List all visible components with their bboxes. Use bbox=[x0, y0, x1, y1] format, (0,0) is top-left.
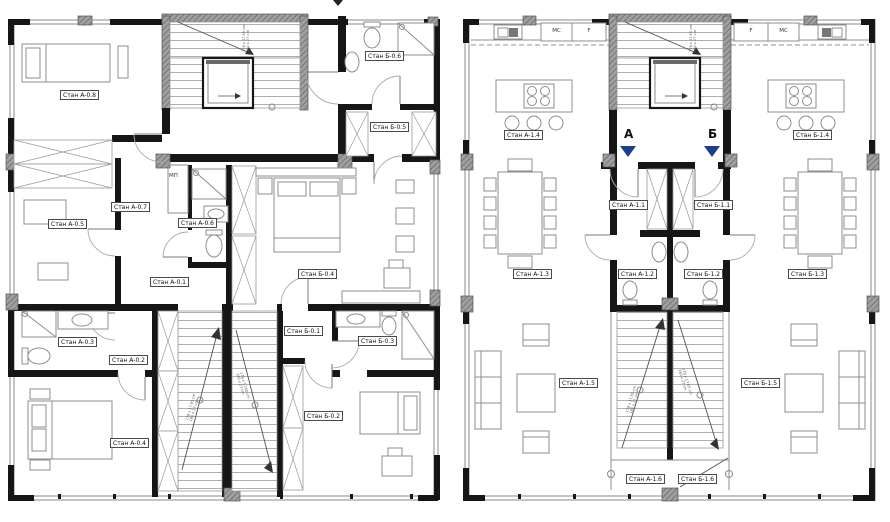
bath-b03 bbox=[336, 311, 434, 359]
coffee-table-right bbox=[785, 374, 823, 412]
room-label-b14: Стан Б-1.4 bbox=[793, 130, 832, 140]
tv-unit bbox=[118, 46, 128, 78]
elevator bbox=[650, 58, 700, 108]
floor-plan-left bbox=[6, 14, 440, 501]
armchair bbox=[791, 324, 817, 346]
cabinet-label-f-left: F bbox=[572, 28, 606, 34]
armchair bbox=[791, 431, 817, 453]
sink-a12 bbox=[652, 242, 666, 262]
bath-b06 bbox=[345, 22, 434, 72]
room-label-a04: Стан А-0.4 bbox=[110, 438, 149, 448]
room-label-b01: Стан Б-0.1 bbox=[284, 326, 323, 336]
room-label-a03: Стан А-0.3 bbox=[58, 337, 97, 347]
desk-a05 bbox=[38, 263, 68, 280]
section-cut-icon bbox=[333, 0, 343, 6]
room-label-a15: Стан А-1.5 bbox=[559, 378, 598, 388]
toilet-b12 bbox=[703, 281, 717, 299]
room-label-b13: Стан Б-1.3 bbox=[788, 269, 827, 279]
bath-a06 bbox=[192, 169, 228, 257]
dining-table-left bbox=[484, 159, 556, 268]
armchair bbox=[523, 324, 549, 346]
stair-dimension-text: 178 x 17.65 cm180 x 27 cm bbox=[243, 25, 250, 52]
closet-label-mp: МП bbox=[169, 173, 178, 179]
room-label-a13: Стан А-1.3 bbox=[513, 269, 552, 279]
cabinet-label-mc-right: МС bbox=[768, 28, 799, 34]
bed-b04 bbox=[256, 168, 420, 303]
room-label-a14: Стан А-1.4 bbox=[504, 130, 543, 140]
room-label-b05: Стан Б-0.5 bbox=[370, 122, 409, 132]
stair-dimension-text: 178 x 17.65 cm180 x 27 cm bbox=[690, 25, 697, 52]
coffee-table-left bbox=[517, 374, 555, 412]
section-marker-a-icon bbox=[620, 146, 636, 157]
room-label-a16: Стан А-1.6 bbox=[626, 474, 665, 484]
cabinet-label-mc-left: МС bbox=[541, 28, 572, 34]
room-label-a02: Стан А-0.2 bbox=[109, 355, 148, 365]
room-label-a07: Стан А-0.7 bbox=[111, 202, 150, 212]
room-label-a01: Стан А-0.1 bbox=[150, 277, 189, 287]
dining-table-right bbox=[784, 159, 856, 268]
sink-b12 bbox=[674, 242, 688, 262]
cabinet-label-f-right: F bbox=[734, 28, 768, 34]
room-label-b04: Стан Б-0.4 bbox=[298, 269, 337, 279]
bed-b02 bbox=[360, 392, 420, 476]
floor-plan-canvas: Стан А-0.8 Стан А-0.7 Стан А-0.5 Стан А-… bbox=[0, 0, 890, 522]
room-label-b02: Стан Б-0.2 bbox=[304, 411, 343, 421]
sofa-right bbox=[839, 351, 865, 429]
kitchen-island-right bbox=[768, 80, 844, 130]
section-marker-b-icon bbox=[704, 146, 720, 157]
room-label-b11: Стан Б-1.1 bbox=[694, 200, 733, 210]
elevator bbox=[203, 58, 253, 108]
room-label-b03: Стан Б-0.3 bbox=[358, 336, 397, 346]
bed-a08 bbox=[22, 44, 110, 82]
room-label-b15: Стан Б-1.5 bbox=[741, 378, 780, 388]
armchair bbox=[523, 431, 549, 453]
room-label-a08: Стан А-0.8 bbox=[60, 90, 99, 100]
kitchen-island-left bbox=[496, 80, 572, 130]
room-label-a05: Стан А-0.5 bbox=[48, 219, 87, 229]
room-label-b12: Стан Б-1.2 bbox=[684, 269, 723, 279]
floor-plan-right bbox=[461, 14, 879, 501]
room-label-a06: Стан А-0.6 bbox=[178, 218, 217, 228]
room-label-b06: Стан Б-0.6 bbox=[365, 51, 404, 61]
bed-a04 bbox=[28, 389, 112, 470]
sofa-left bbox=[475, 351, 501, 429]
room-label-a11: Стан А-1.1 bbox=[609, 200, 648, 210]
section-marker-b-letter: Б bbox=[708, 128, 717, 140]
room-label-a12: Стан А-1.2 bbox=[618, 269, 657, 279]
stair-core bbox=[162, 14, 308, 162]
section-marker-a-letter: А bbox=[624, 128, 633, 140]
room-label-b16: Стан Б-1.6 bbox=[678, 474, 717, 484]
toilet-a12 bbox=[623, 281, 637, 299]
